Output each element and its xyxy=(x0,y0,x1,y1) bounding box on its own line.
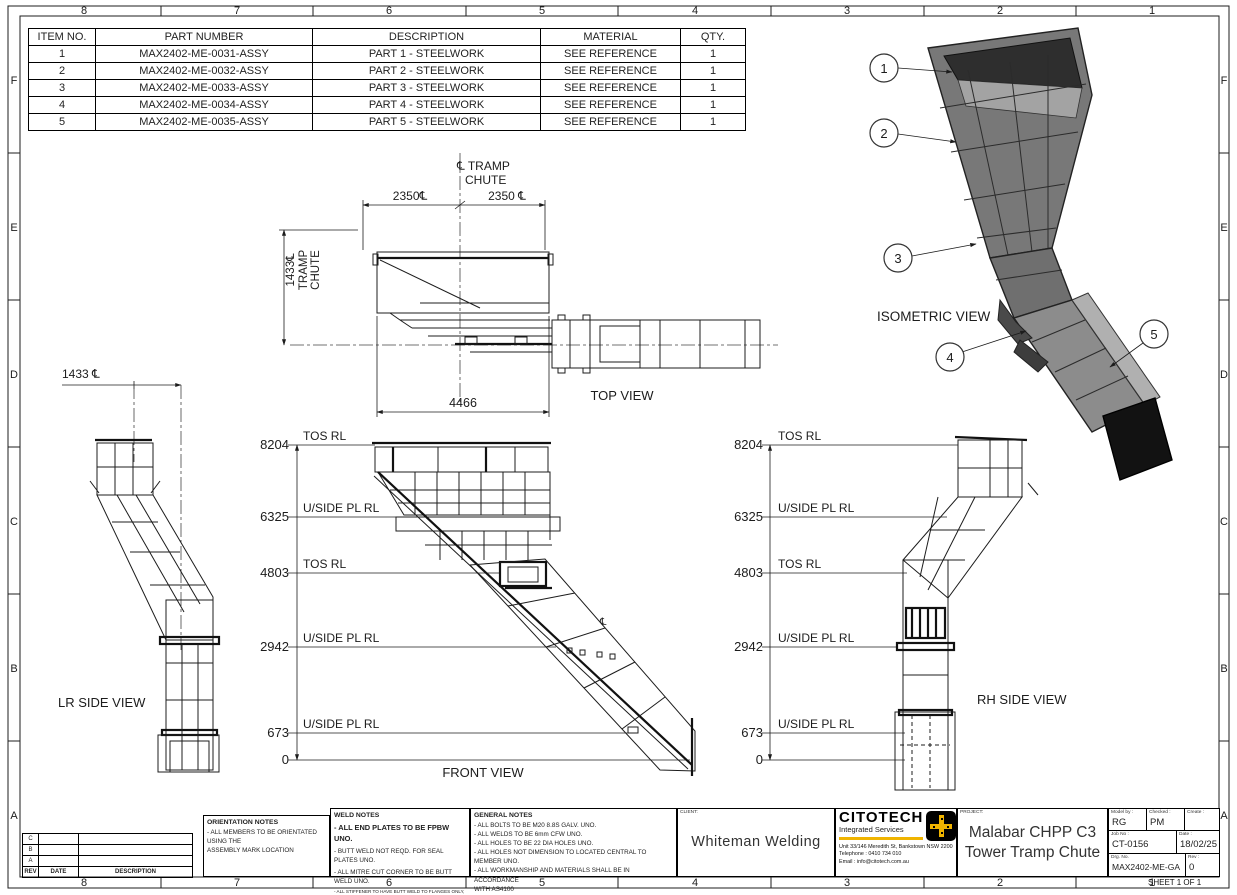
citotech-logo-icon xyxy=(926,811,956,841)
note-line: - ALL WORKMANSHIP AND MATERIALS SHALL BE… xyxy=(474,866,673,884)
bom-header: DESCRIPTION xyxy=(313,29,541,46)
checked-value: PM xyxy=(1150,817,1164,828)
front-rl-values: 8204 6325 4803 2942 673 0 xyxy=(260,437,289,767)
weld-notes: WELD NOTES - ALL END PLATES TO BE FPBW U… xyxy=(330,808,470,877)
svg-text:U/SIDE PL RL: U/SIDE PL RL xyxy=(303,631,380,645)
svg-text:4: 4 xyxy=(692,877,698,889)
bom-header: PART NUMBER xyxy=(96,29,313,46)
rh-side-view: 8204 6325 4803 2942 673 0 TOS RL U/SIDE … xyxy=(734,429,1067,790)
svg-text:F: F xyxy=(1221,75,1228,87)
bom-cell: SEE REFERENCE xyxy=(541,80,681,97)
company-address: Unit 33/146 Meredith St, Bankstown NSW 2… xyxy=(839,844,953,851)
bom-cell: 1 xyxy=(29,46,96,63)
note-line: - ALL BOLTS TO BE M20 8.8S GALV. UNO. xyxy=(474,821,673,830)
orientation-notes-title: ORIENTATION NOTES xyxy=(207,818,326,828)
general-notes-title: GENERAL NOTES xyxy=(474,811,673,821)
isometric-view-label: ISOMETRIC VIEW xyxy=(877,309,991,324)
svg-text:U/SIDE PL RL: U/SIDE PL RL xyxy=(303,501,380,515)
svg-text:8204: 8204 xyxy=(734,437,763,452)
bom-cell: 2 xyxy=(29,63,96,80)
isometric-view: 1 2 3 4 5 ISOMETRIC VIEW xyxy=(870,28,1172,480)
company-tagline: Integrated Services xyxy=(839,825,923,836)
balloon-4: 4 xyxy=(946,350,953,365)
bom-row: 4MAX2402-ME-0034-ASSY PART 4 - STEELWORK… xyxy=(29,97,746,114)
title-block-fields: Model by : RG Checked : PM Create : Job … xyxy=(1108,808,1220,877)
balloon-2: 2 xyxy=(880,126,887,141)
dim-4466: 4466 xyxy=(449,396,477,410)
bom-cell: PART 1 - STEELWORK xyxy=(313,46,541,63)
svg-text:TOS RL: TOS RL xyxy=(778,557,821,571)
bom-header-row: ITEM NO. PART NUMBER DESCRIPTION MATERIA… xyxy=(29,29,746,46)
svg-text:3: 3 xyxy=(844,877,850,889)
svg-text:U/SIDE PL RL: U/SIDE PL RL xyxy=(778,717,855,731)
company-accent-rule xyxy=(839,837,923,840)
client-label: CLIENT: xyxy=(680,810,698,817)
bom-cell: PART 4 - STEELWORK xyxy=(313,97,541,114)
project-title-line2: Tower Tramp Chute xyxy=(958,843,1107,862)
svg-text:U/SIDE PL RL: U/SIDE PL RL xyxy=(778,501,855,515)
bom-cell: MAX2402-ME-0031-ASSY xyxy=(96,46,313,63)
svg-text:TOS RL: TOS RL xyxy=(303,429,346,443)
project-label: PROJECT: xyxy=(960,810,983,817)
bom-cell: 5 xyxy=(29,114,96,131)
sheet-label: SHEET 1 OF 1 xyxy=(1148,878,1201,887)
front-view: 8204 6325 4803 2942 673 0 TOS RL U/SIDE … xyxy=(260,429,695,780)
svg-text:U/SIDE PL RL: U/SIDE PL RL xyxy=(778,631,855,645)
project-title-line1: Malabar CHPP C3 xyxy=(958,823,1107,842)
svg-text:0: 0 xyxy=(756,752,763,767)
dim-2350-left: 2350℄ xyxy=(393,189,428,203)
svg-text:2: 2 xyxy=(997,5,1003,17)
bom-cell: MAX2402-ME-0033-ASSY xyxy=(96,80,313,97)
svg-text:C: C xyxy=(1220,516,1228,528)
front-view-label: FRONT VIEW xyxy=(442,765,524,780)
svg-text:B: B xyxy=(10,663,17,675)
svg-text:6: 6 xyxy=(386,5,392,17)
bom-row: 5MAX2402-ME-0035-ASSY PART 5 - STEELWORK… xyxy=(29,114,746,131)
top-view-label: TOP VIEW xyxy=(590,388,654,403)
svg-text:8: 8 xyxy=(81,5,87,17)
note-line: - ALL HOLES TO BE 22 DIA HOLES UNO. xyxy=(474,839,673,848)
bom-cell: SEE REFERENCE xyxy=(541,97,681,114)
note-line: - ALL WELDS TO BE 6mm CFW UNO. xyxy=(474,830,673,839)
drg-no-value: MAX2402-ME-GA xyxy=(1112,862,1180,872)
note-line: - ALL STIFFENER TO HAVE BUTT WELD TO FLA… xyxy=(334,889,466,894)
drawing-canvas: 87 65 43 21 87 65 43 21 FE DC BA FE DC B… xyxy=(0,0,1237,895)
bom-row: 1MAX2402-ME-0031-ASSY PART 1 - STEELWORK… xyxy=(29,46,746,63)
bom-cell: SEE REFERENCE xyxy=(541,114,681,131)
bom-cell: 1 xyxy=(681,46,746,63)
note-line: - ALL END PLATES TO BE FPBW UNO. xyxy=(334,823,466,844)
bom-cell: SEE REFERENCE xyxy=(541,46,681,63)
balloon-3: 3 xyxy=(894,251,901,266)
svg-text:B: B xyxy=(1220,663,1227,675)
company-name: CITOTECH xyxy=(839,811,923,825)
rev-value: 0 xyxy=(1189,862,1194,873)
bom-cell: PART 5 - STEELWORK xyxy=(313,114,541,131)
svg-text:3: 3 xyxy=(844,5,850,17)
bom-cell: SEE REFERENCE xyxy=(541,63,681,80)
revision-row: B xyxy=(23,845,192,856)
bom-cell: MAX2402-ME-0034-ASSY xyxy=(96,97,313,114)
svg-text:C: C xyxy=(10,516,18,528)
svg-text:5: 5 xyxy=(539,5,545,17)
balloon-5: 5 xyxy=(1150,327,1157,342)
description-header: DESCRIPTION xyxy=(79,867,192,877)
rh-rl-values: 8204 6325 4803 2942 673 0 xyxy=(734,437,763,767)
bom-cell: 1 xyxy=(681,80,746,97)
top-view: 2350℄ 2350 ℄ ℄ TRAMP CHUTE 1433℄ TRAMP C… xyxy=(279,153,778,417)
svg-text:2942: 2942 xyxy=(260,639,289,654)
bom-table: ITEM NO. PART NUMBER DESCRIPTION MATERIA… xyxy=(28,28,746,131)
dim-1433-top: 1433℄ xyxy=(285,253,297,287)
bom-cell: 1 xyxy=(681,114,746,131)
svg-text:4803: 4803 xyxy=(734,565,763,580)
bom-cell: PART 2 - STEELWORK xyxy=(313,63,541,80)
svg-text:673: 673 xyxy=(741,725,763,740)
svg-text:TOS RL: TOS RL xyxy=(778,429,821,443)
job-no-value: CT-0156 xyxy=(1112,839,1148,850)
general-notes: GENERAL NOTES - ALL BOLTS TO BE M20 8.8S… xyxy=(470,808,677,877)
dim-1433-l1: TRAMP xyxy=(298,250,310,291)
svg-text:0: 0 xyxy=(282,752,289,767)
bom-cell: 3 xyxy=(29,80,96,97)
model-by-value: RG xyxy=(1112,817,1126,828)
orientation-notes: ORIENTATION NOTES - ALL MEMBERS TO BE OR… xyxy=(203,815,330,877)
note-line: - ALL MEMBERS TO BE ORIENTATED USING THE xyxy=(207,828,326,846)
bom-header: MATERIAL xyxy=(541,29,681,46)
rev-header: REV xyxy=(23,867,39,877)
date-field: Date : 18/02/25 xyxy=(1177,831,1219,853)
revision-letter: C xyxy=(23,834,39,844)
project-block: PROJECT: Malabar CHPP C3 Tower Tramp Chu… xyxy=(957,808,1108,877)
date-value: 18/02/25 xyxy=(1180,839,1217,850)
svg-text:A: A xyxy=(10,810,18,822)
job-no-field: Job No : CT-0156 xyxy=(1109,831,1177,853)
bom-header: QTY. xyxy=(681,29,746,46)
bom-row: 2MAX2402-ME-0032-ASSY PART 2 - STEELWORK… xyxy=(29,63,746,80)
lr-side-view-label: LR SIDE VIEW xyxy=(58,695,146,710)
rh-rl-names: TOS RL U/SIDE PL RL TOS RL U/SIDE PL RL … xyxy=(778,429,855,731)
note-line: - ALL MITRE CUT CORNER TO BE BUTT WELD U… xyxy=(334,868,466,886)
lr-side-view: 1433 ℄ LR SIDE VIEW xyxy=(58,367,219,772)
svg-text:673: 673 xyxy=(267,725,289,740)
svg-text:A: A xyxy=(1220,810,1228,822)
revision-row: A xyxy=(23,856,192,867)
svg-text:D: D xyxy=(10,369,18,381)
bom-cell: MAX2402-ME-0035-ASSY xyxy=(96,114,313,131)
note-line: ASSEMBLY MARK LOCATION xyxy=(207,846,326,855)
svg-text:TOS RL: TOS RL xyxy=(303,557,346,571)
svg-text:8204: 8204 xyxy=(260,437,289,452)
revision-header-row: REV DATE DESCRIPTION xyxy=(23,867,192,877)
svg-text:4: 4 xyxy=(692,5,698,17)
create-field: Create : xyxy=(1185,809,1219,831)
revision-table: C B A REV DATE DESCRIPTION xyxy=(22,833,193,878)
client-block: CLIENT: Whiteman Welding xyxy=(677,808,835,877)
svg-text:8: 8 xyxy=(81,877,87,889)
front-cl-symbol: ℄ xyxy=(599,617,607,628)
revision-letter: B xyxy=(23,845,39,855)
revision-row: C xyxy=(23,834,192,845)
revision-letter: A xyxy=(23,856,39,866)
bom-cell: 4 xyxy=(29,97,96,114)
svg-text:2: 2 xyxy=(997,877,1003,889)
company-email: Email : info@citotech.com.au xyxy=(839,859,953,866)
svg-text:4803: 4803 xyxy=(260,565,289,580)
bom-header: ITEM NO. xyxy=(29,29,96,46)
weld-notes-title: WELD NOTES xyxy=(334,811,466,821)
client-name: Whiteman Welding xyxy=(691,832,820,853)
svg-text:2942: 2942 xyxy=(734,639,763,654)
svg-text:6325: 6325 xyxy=(734,509,763,524)
lr-dim-1433: 1433 ℄ xyxy=(62,367,100,381)
svg-text:6325: 6325 xyxy=(260,509,289,524)
bom-cell: PART 3 - STEELWORK xyxy=(313,80,541,97)
model-by-field: Model by : RG xyxy=(1109,809,1147,831)
rev-field: Rev : 0 xyxy=(1186,854,1219,876)
svg-text:1: 1 xyxy=(1149,5,1155,17)
dim-2350-right: 2350 ℄ xyxy=(488,189,526,203)
drg-no-field: Drg. No. MAX2402-ME-GA xyxy=(1109,854,1186,876)
svg-text:F: F xyxy=(11,75,18,87)
bom-row: 3MAX2402-ME-0033-ASSY PART 3 - STEELWORK… xyxy=(29,80,746,97)
note-line: - ALL HOLES NOT DIMENSION TO LOCATED CEN… xyxy=(474,848,673,866)
note-line: - BUTT WELD NOT REQD. FOR SEAL PLATES UN… xyxy=(334,847,466,865)
svg-text:7: 7 xyxy=(234,5,240,17)
checked-field: Checked : PM xyxy=(1147,809,1185,831)
drawing-sheet: 87 65 43 21 87 65 43 21 FE DC BA FE DC B… xyxy=(0,0,1237,895)
svg-text:U/SIDE PL RL: U/SIDE PL RL xyxy=(303,717,380,731)
front-rl-names: TOS RL U/SIDE PL RL TOS RL U/SIDE PL RL … xyxy=(303,429,380,731)
dim-1433-l2: CHUTE xyxy=(310,250,322,290)
centerline-label-2: CHUTE xyxy=(465,173,506,187)
date-header: DATE xyxy=(39,867,79,877)
svg-text:E: E xyxy=(10,222,17,234)
bom-cell: MAX2402-ME-0032-ASSY xyxy=(96,63,313,80)
bom-cell: 1 xyxy=(681,97,746,114)
bom-cell: 1 xyxy=(681,63,746,80)
svg-text:7: 7 xyxy=(234,877,240,889)
company-phone: Telephone : 0410 734 010 xyxy=(839,851,953,858)
note-line: WITH AS4100 xyxy=(474,885,673,894)
company-block: CITOTECH Integrated Services Unit 33/146… xyxy=(835,808,957,877)
svg-text:E: E xyxy=(1220,222,1227,234)
balloon-1: 1 xyxy=(880,61,887,76)
svg-text:D: D xyxy=(1220,369,1228,381)
rh-side-view-label: RH SIDE VIEW xyxy=(977,692,1067,707)
centerline-label-1: ℄ TRAMP xyxy=(456,159,510,173)
